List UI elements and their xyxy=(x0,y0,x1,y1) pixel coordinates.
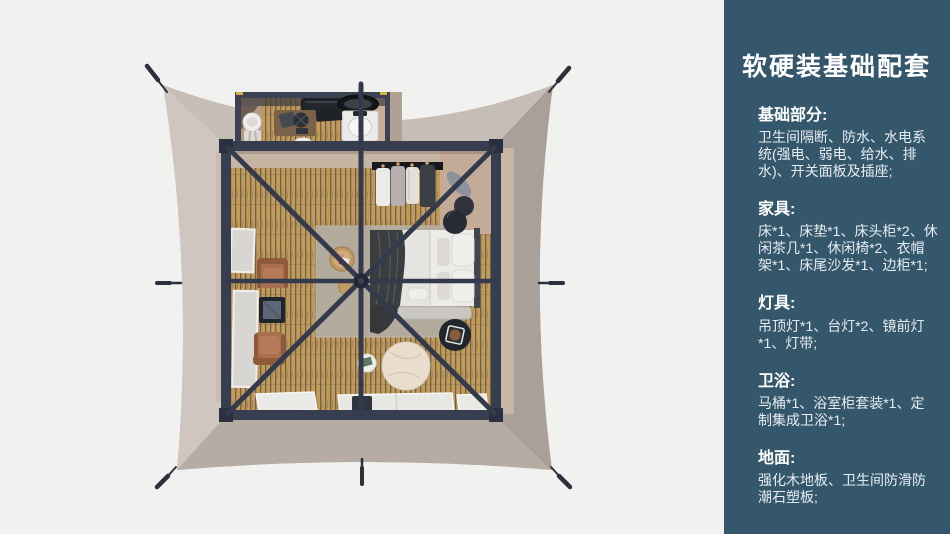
bathroom-counter xyxy=(316,108,343,122)
deck-strip-right xyxy=(500,148,514,414)
section-body: 吊顶灯*1、台灯*2、镜前灯*1、灯带; xyxy=(758,318,938,352)
section-heading: 灯具: xyxy=(758,294,938,313)
section-flooring: 地面: 强化木地板、卫生间防滑防潮石塑板; xyxy=(758,449,938,506)
bathroom xyxy=(235,92,402,146)
section-body: 强化木地板、卫生间防滑防潮石塑板; xyxy=(758,472,938,506)
section-heading: 基础部分: xyxy=(758,106,938,125)
bean-bag xyxy=(382,342,430,390)
floorplan-panel xyxy=(0,0,724,534)
section-basics: 基础部分: 卫生间隔断、防水、水电系统(强电、弱电、给水、排水)、开关面板及插座… xyxy=(758,106,938,180)
tea-table xyxy=(259,297,285,323)
spec-sidebar: 软硬装基础配套 基础部分: 卫生间隔断、防水、水电系统(强电、弱电、给水、排水)… xyxy=(724,0,950,534)
window-panels-left xyxy=(230,229,258,388)
wardrobe-rack xyxy=(372,161,443,207)
center-hub xyxy=(354,274,369,289)
section-heading: 地面: xyxy=(758,449,938,468)
section-heading: 卫浴: xyxy=(758,372,938,391)
section-bathroom: 卫浴: 马桶*1、浴室柜套装*1、定制集成卫浴*1; xyxy=(758,372,938,429)
bathroom-shadow xyxy=(390,92,402,146)
section-heading: 家具: xyxy=(758,200,938,219)
tent-floorplan-render xyxy=(0,0,724,534)
section-body: 床*1、床垫*1、床头柜*2、休闲茶几*1、休闲椅*2、衣帽架*1、床尾沙发*1… xyxy=(758,223,938,274)
section-furniture: 家具: 床*1、床垫*1、床头柜*2、休闲茶几*1、休闲椅*2、衣帽架*1、床尾… xyxy=(758,200,938,274)
corner-mark-left xyxy=(236,92,243,95)
corner-mark-right xyxy=(380,92,387,95)
bed-end-bench xyxy=(398,307,471,319)
bathroom-mirror xyxy=(338,96,378,113)
side-table-dark xyxy=(439,319,471,351)
headboard xyxy=(474,228,480,308)
section-body: 马桶*1、浴室柜套装*1、定制集成卫浴*1; xyxy=(758,395,938,429)
lounge-chair-1 xyxy=(257,258,288,288)
section-lighting: 灯具: 吊顶灯*1、台灯*2、镜前灯*1、灯带; xyxy=(758,294,938,351)
slide: 软硬装基础配套 基础部分: 卫生间隔断、防水、水电系统(强电、弱电、给水、排水)… xyxy=(0,0,950,534)
bathroom-vanity xyxy=(274,110,316,136)
page-title: 软硬装基础配套 xyxy=(742,52,938,82)
section-body: 卫生间隔断、防水、水电系统(强电、弱电、给水、排水)、开关面板及插座; xyxy=(758,129,938,180)
